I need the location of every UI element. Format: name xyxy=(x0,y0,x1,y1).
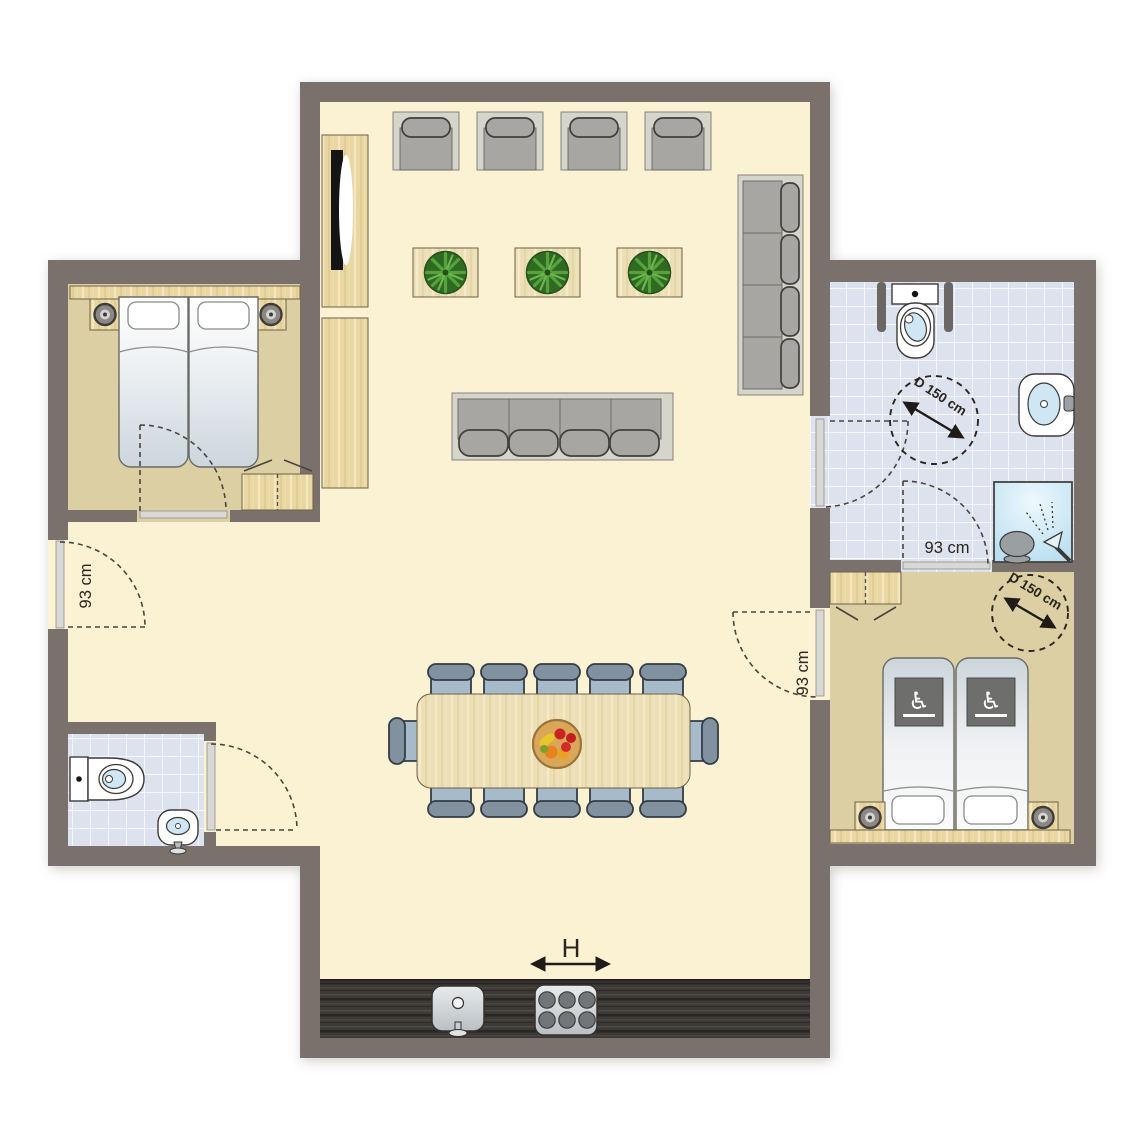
living-room-floor xyxy=(320,102,810,1038)
cabinet xyxy=(322,318,368,488)
nightstand xyxy=(1028,802,1058,833)
hob-icon xyxy=(535,985,597,1035)
shower-area xyxy=(994,482,1072,563)
nightstand xyxy=(256,299,286,330)
armchair xyxy=(393,112,459,170)
wall-segment xyxy=(830,560,901,572)
plant-table xyxy=(413,248,478,297)
floor-plan-page: ♿ xyxy=(0,0,1145,1145)
wc-door xyxy=(207,743,215,830)
armchair xyxy=(561,112,627,170)
toilet-icon xyxy=(892,284,938,358)
shower-stool xyxy=(1000,532,1034,557)
washbasin-icon xyxy=(1019,374,1074,436)
nightstand xyxy=(855,802,885,833)
pillow xyxy=(198,302,249,329)
plant-table xyxy=(515,248,580,297)
accessible-beds xyxy=(883,658,1028,830)
sofa-horizontal xyxy=(452,393,673,460)
door-width-label-bedroom: 93 cm xyxy=(794,651,812,696)
pillow xyxy=(964,796,1017,824)
wall-segment xyxy=(48,260,68,540)
door-width-label-left: 93 cm xyxy=(77,564,95,609)
nightstand xyxy=(90,299,120,330)
wall-segment xyxy=(300,82,320,522)
wall-segment xyxy=(48,629,68,866)
wall-segment xyxy=(300,1038,830,1058)
tv-screen xyxy=(339,155,353,265)
wall-segment xyxy=(204,832,216,846)
accessible-bed-icon xyxy=(895,678,943,726)
sink-icon xyxy=(432,986,484,1037)
hob-height-label: H xyxy=(562,933,581,963)
pillow xyxy=(892,796,944,824)
grab-bar xyxy=(944,282,953,332)
wall-segment xyxy=(48,722,216,734)
armchair xyxy=(645,112,711,170)
wall-segment xyxy=(810,82,830,416)
wall-segment xyxy=(230,510,320,522)
entry-door-left xyxy=(56,541,64,628)
door-width-label-bathroom: 93 cm xyxy=(925,539,970,557)
wall-segment xyxy=(48,260,300,284)
armchair xyxy=(477,112,543,170)
plant-table xyxy=(617,248,682,297)
bedroom-left-door xyxy=(140,511,227,518)
wall-segment xyxy=(810,700,830,1058)
toilet-icon xyxy=(70,757,144,801)
bathroom-door xyxy=(816,419,824,506)
dining-set xyxy=(389,664,718,817)
bedroom-right-door xyxy=(816,610,824,696)
wall-segment xyxy=(300,846,320,1058)
fruit-bowl-icon xyxy=(533,720,581,768)
headboard-shelf xyxy=(830,830,1070,843)
wall-segment xyxy=(810,508,830,608)
bed-double xyxy=(119,297,258,467)
wall-segment xyxy=(1074,260,1096,866)
tv-cabinet xyxy=(322,135,368,307)
bathroom-bedroom-door xyxy=(903,562,990,569)
wall-segment xyxy=(48,510,137,522)
grab-bar xyxy=(877,282,886,332)
pillow xyxy=(128,302,179,329)
accessible-bed-icon xyxy=(967,678,1015,726)
wall-segment xyxy=(300,82,830,102)
floor-plan: ♿ xyxy=(0,0,1145,1145)
wall-segment xyxy=(810,844,1096,866)
wall-segment xyxy=(830,260,1096,282)
wall-segment xyxy=(204,722,216,741)
sofa-vertical xyxy=(738,175,803,395)
